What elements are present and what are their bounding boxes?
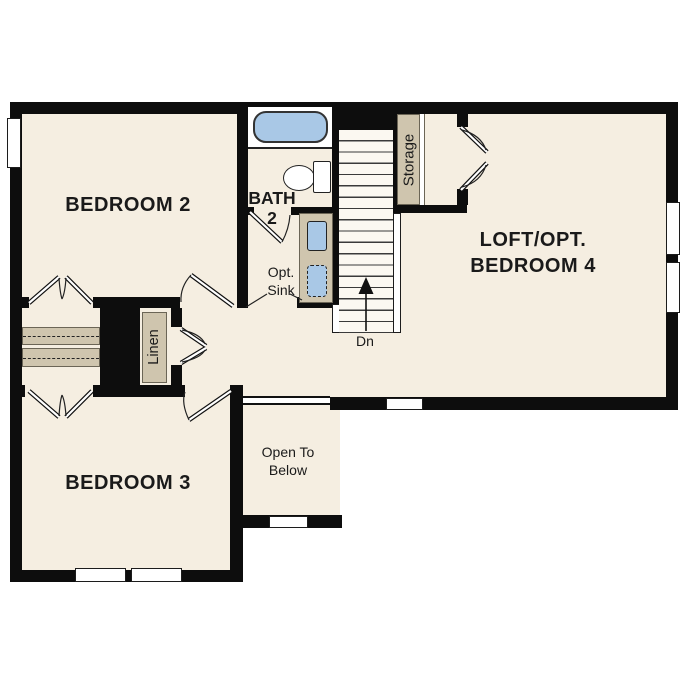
label-opt-sink: Opt.Sink [251,264,311,299]
label-open-to-below: Open ToBelow [238,444,338,479]
opt-sink-line2: Sink [251,282,311,300]
loft-line2: BEDROOM 4 [433,253,633,279]
room-label-bath2: BATH2 [241,188,303,228]
label-stairs-dn: Dn [350,333,380,351]
bath2-line2: 2 [241,208,303,228]
door-bedroom2-closet [29,277,92,303]
open-below-line2: Below [238,462,338,480]
opt-sink-line1: Opt. [251,264,311,282]
door-storage [461,127,487,190]
stairs-direction-arrow [359,277,374,331]
room-label-loft: LOFT/OPT.BEDROOM 4 [433,227,633,279]
door-bedroom3-entry [184,391,231,420]
floor-plan: BEDROOM 2 BATH2 LOFT/OPT.BEDROOM 4 BEDRO… [0,0,687,687]
label-linen: Linen [146,329,162,364]
door-bedroom3-closet [29,391,92,417]
bath2-line1: BATH [241,188,303,208]
room-label-bedroom3: BEDROOM 3 [28,470,228,496]
loft-line1: LOFT/OPT. [433,227,633,253]
room-label-bedroom2: BEDROOM 2 [28,192,228,218]
door-linen [181,329,206,363]
door-bedroom2-entry [181,275,233,306]
door-swings-overlay [0,0,687,687]
label-storage: Storage [401,134,418,187]
open-below-line1: Open To [238,444,338,462]
